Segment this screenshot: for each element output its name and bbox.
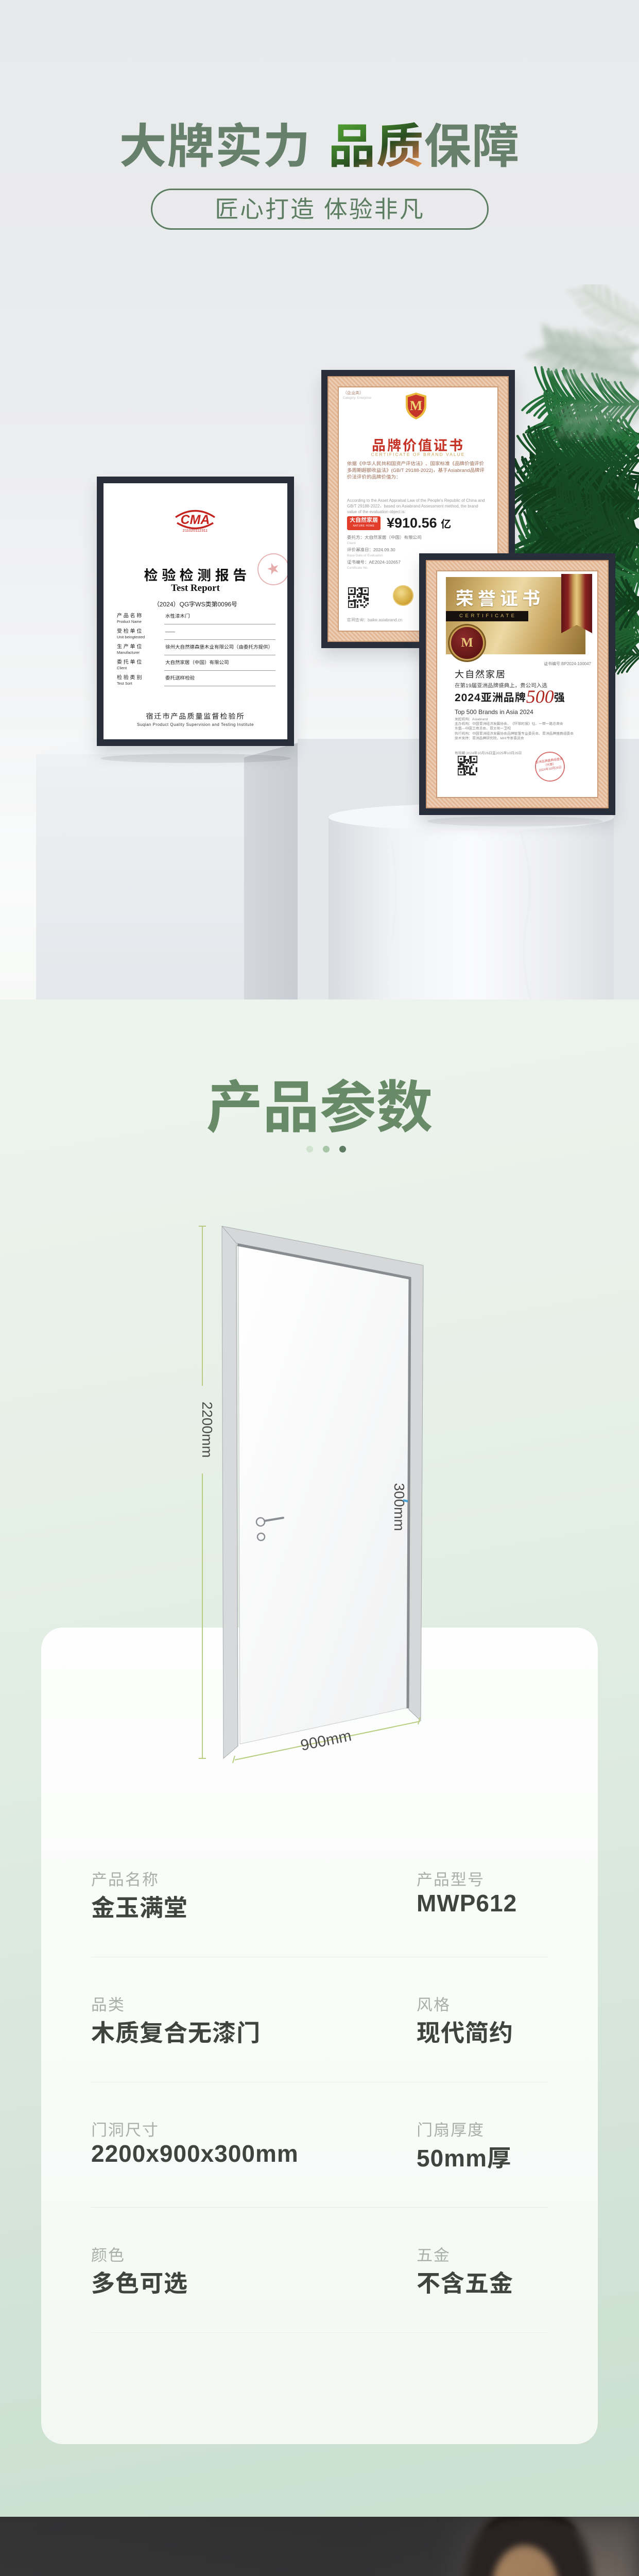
svg-text:300mm: 300mm — [391, 1483, 407, 1531]
svg-text:CMA: CMA — [181, 513, 210, 527]
svg-text:211020112311: 211020112311 — [183, 528, 208, 533]
svg-text:M: M — [410, 398, 423, 413]
svg-text:900mm: 900mm — [299, 1727, 353, 1754]
svg-text:2200mm: 2200mm — [199, 1402, 215, 1458]
